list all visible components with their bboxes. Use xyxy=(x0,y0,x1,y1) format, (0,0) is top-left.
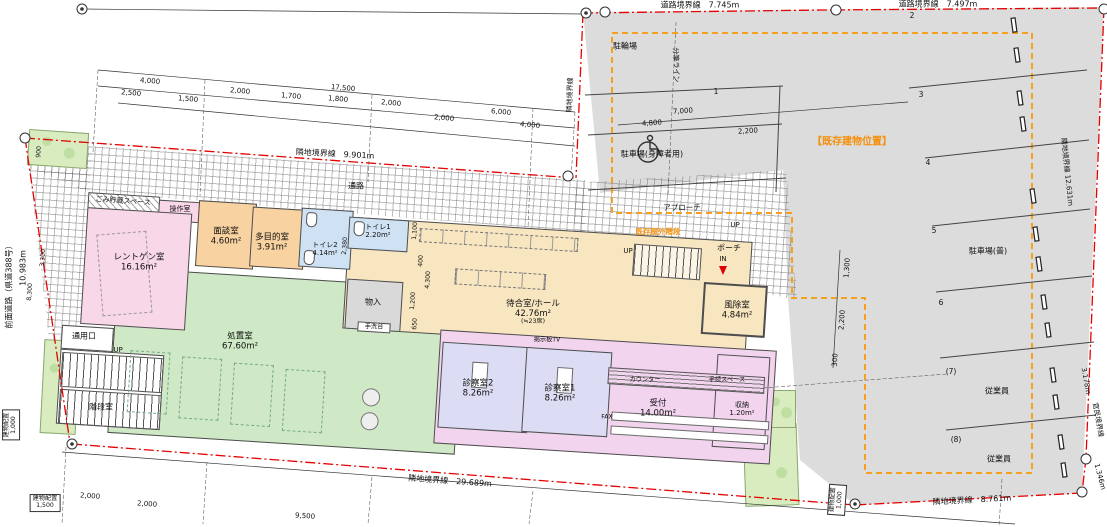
existing-building-label: 【既存建物位置】 xyxy=(812,136,892,147)
dim-4000: 4,000 xyxy=(140,77,161,87)
passage-label: 通路 xyxy=(348,183,364,192)
stall-number-7: (7) xyxy=(946,368,957,376)
dim-650: 650 xyxy=(412,318,420,330)
room-label-xray: レントゲン室16.16m² xyxy=(113,253,164,272)
dim-1200: 1,200 xyxy=(410,292,418,310)
room-label-multi: 多目的室3.91m² xyxy=(255,233,289,252)
up-label-porch: UP xyxy=(730,222,739,230)
front-road-label: 前面道路（県道388号） xyxy=(6,241,15,328)
room-label-closet: 物入 xyxy=(365,299,381,308)
dim-2000e: 2,000 xyxy=(137,500,158,509)
room-label-exam1: 診察室18.26m² xyxy=(545,384,576,403)
tv-board-label: 掲示板TV xyxy=(534,338,561,345)
placement-box-bottom: 建物配置1,500 xyxy=(30,494,61,512)
stall-number-6: 6 xyxy=(939,299,944,307)
stall-number-5: 5 xyxy=(932,227,937,235)
dim-6000: 6,000 xyxy=(491,108,512,118)
stall-number-8: (8) xyxy=(951,436,962,444)
dim-1100: 1,100 xyxy=(412,222,420,240)
dim-2000a: 2,000 xyxy=(230,87,251,97)
room-label-control: 操作室 xyxy=(170,206,191,214)
dim-900: 900 xyxy=(36,146,44,158)
site-plan-canvas: レントゲン室16.16m² 操作室 ごみ貯蔵スペース 面談室4.60m² 多目的… xyxy=(0,0,1107,527)
dim-2380: 2,380 xyxy=(342,237,350,255)
dim-9500: 9,500 xyxy=(295,512,316,521)
dim-4300: 4,300 xyxy=(425,271,433,289)
lot-split-line-label: 分筆ライン xyxy=(670,47,679,82)
linework-layer xyxy=(0,0,1107,527)
existing-stairs-label: 既存屋外階段 xyxy=(636,228,681,236)
survey-points xyxy=(20,4,1107,509)
room-label-exam2: 診察室28.26m² xyxy=(463,379,494,398)
regular-parking-label: 駐車場(普) xyxy=(969,248,1007,257)
fax-label: FAX xyxy=(601,415,612,422)
counter-label: カウンター xyxy=(630,378,661,385)
up-label-stairs: UP xyxy=(113,347,122,355)
dim-7000: 7,000 xyxy=(673,107,694,116)
stall-number-3: 3 xyxy=(919,91,924,99)
room-label-reception: 受付14.00m² xyxy=(640,399,676,418)
dim-1500: 1,500 xyxy=(178,95,199,105)
employee-label-2: 従業員 xyxy=(987,456,1011,465)
in-label: IN xyxy=(719,256,726,264)
room-label-treatment: 処置室67.60m² xyxy=(222,332,258,351)
dim-4000b: 4,000 xyxy=(520,121,541,131)
accessible-parking-label: 駐車場(身障者用) xyxy=(621,151,683,160)
dim-400: 400 xyxy=(418,255,426,267)
room-label-toilet1: トイレ12.20m² xyxy=(365,224,390,240)
road-boundary-label-2: 道路境界線 7.497m xyxy=(899,1,978,10)
dim-2000d: 2,000 xyxy=(80,492,101,501)
up-label-slope: UP xyxy=(623,248,632,256)
procedure-space-label: 手続スペース xyxy=(709,378,745,385)
room-label-interview: 面談室4.60m² xyxy=(211,227,242,246)
room-label-wash: 手洗台 xyxy=(365,325,384,332)
dim-2200: 2,200 xyxy=(738,127,759,136)
porch-label: ポーチ xyxy=(717,245,741,254)
dim-4800: 4,800 xyxy=(642,119,663,128)
stall-number-1: 1 xyxy=(714,88,719,96)
dim-1800: 1,800 xyxy=(328,95,349,105)
room-label-waiting: 待合室/ホール42.76m²(≒23席) xyxy=(506,300,560,326)
wheel-stops xyxy=(1011,18,1067,477)
placement-box-left: 建物配置1,000 xyxy=(2,410,20,441)
road-boundary-label-1: 道路境界線 7.745m xyxy=(661,2,740,11)
stall-number-4: 4 xyxy=(926,159,931,167)
dim-2000c: 2,000 xyxy=(434,114,455,124)
dim-8300: 8,300 xyxy=(27,283,35,301)
dim-2500: 2,500 xyxy=(121,89,142,99)
dim-1700: 1,700 xyxy=(281,92,302,102)
dim-1300: 1,300 xyxy=(843,258,852,279)
dim-3300: 3,300 xyxy=(40,249,48,267)
dim-2000b: 2,000 xyxy=(381,99,402,109)
bicycle-parking-label: 駐輪場 xyxy=(613,43,637,52)
room-label-stairwell: 階段室 xyxy=(89,404,113,413)
boundary-lines xyxy=(25,8,1104,505)
entrance-in-arrow xyxy=(719,266,727,275)
guide-lines xyxy=(62,22,1002,527)
room-label-service-entrance: 通用口 xyxy=(72,333,96,342)
approach-label: アプローチ xyxy=(663,204,701,212)
mid-vertical-boundary-label: 隣地境界線 xyxy=(566,77,575,112)
room-label-storage: 収納1.20m² xyxy=(729,402,754,418)
dim-2200b: 2,200 xyxy=(838,310,847,331)
placement-box-right: 建物配置1,000 xyxy=(827,484,847,516)
front-road-length-label: 10.983m xyxy=(20,250,29,286)
employee-label-1: 従業員 xyxy=(985,388,1009,397)
dim-300: 300 xyxy=(832,353,841,367)
stall-number-2: 2 xyxy=(910,12,915,20)
room-label-toilet2: トイレ24.14m² xyxy=(312,242,337,258)
room-label-windbreak: 風除室4.84m² xyxy=(722,301,753,320)
